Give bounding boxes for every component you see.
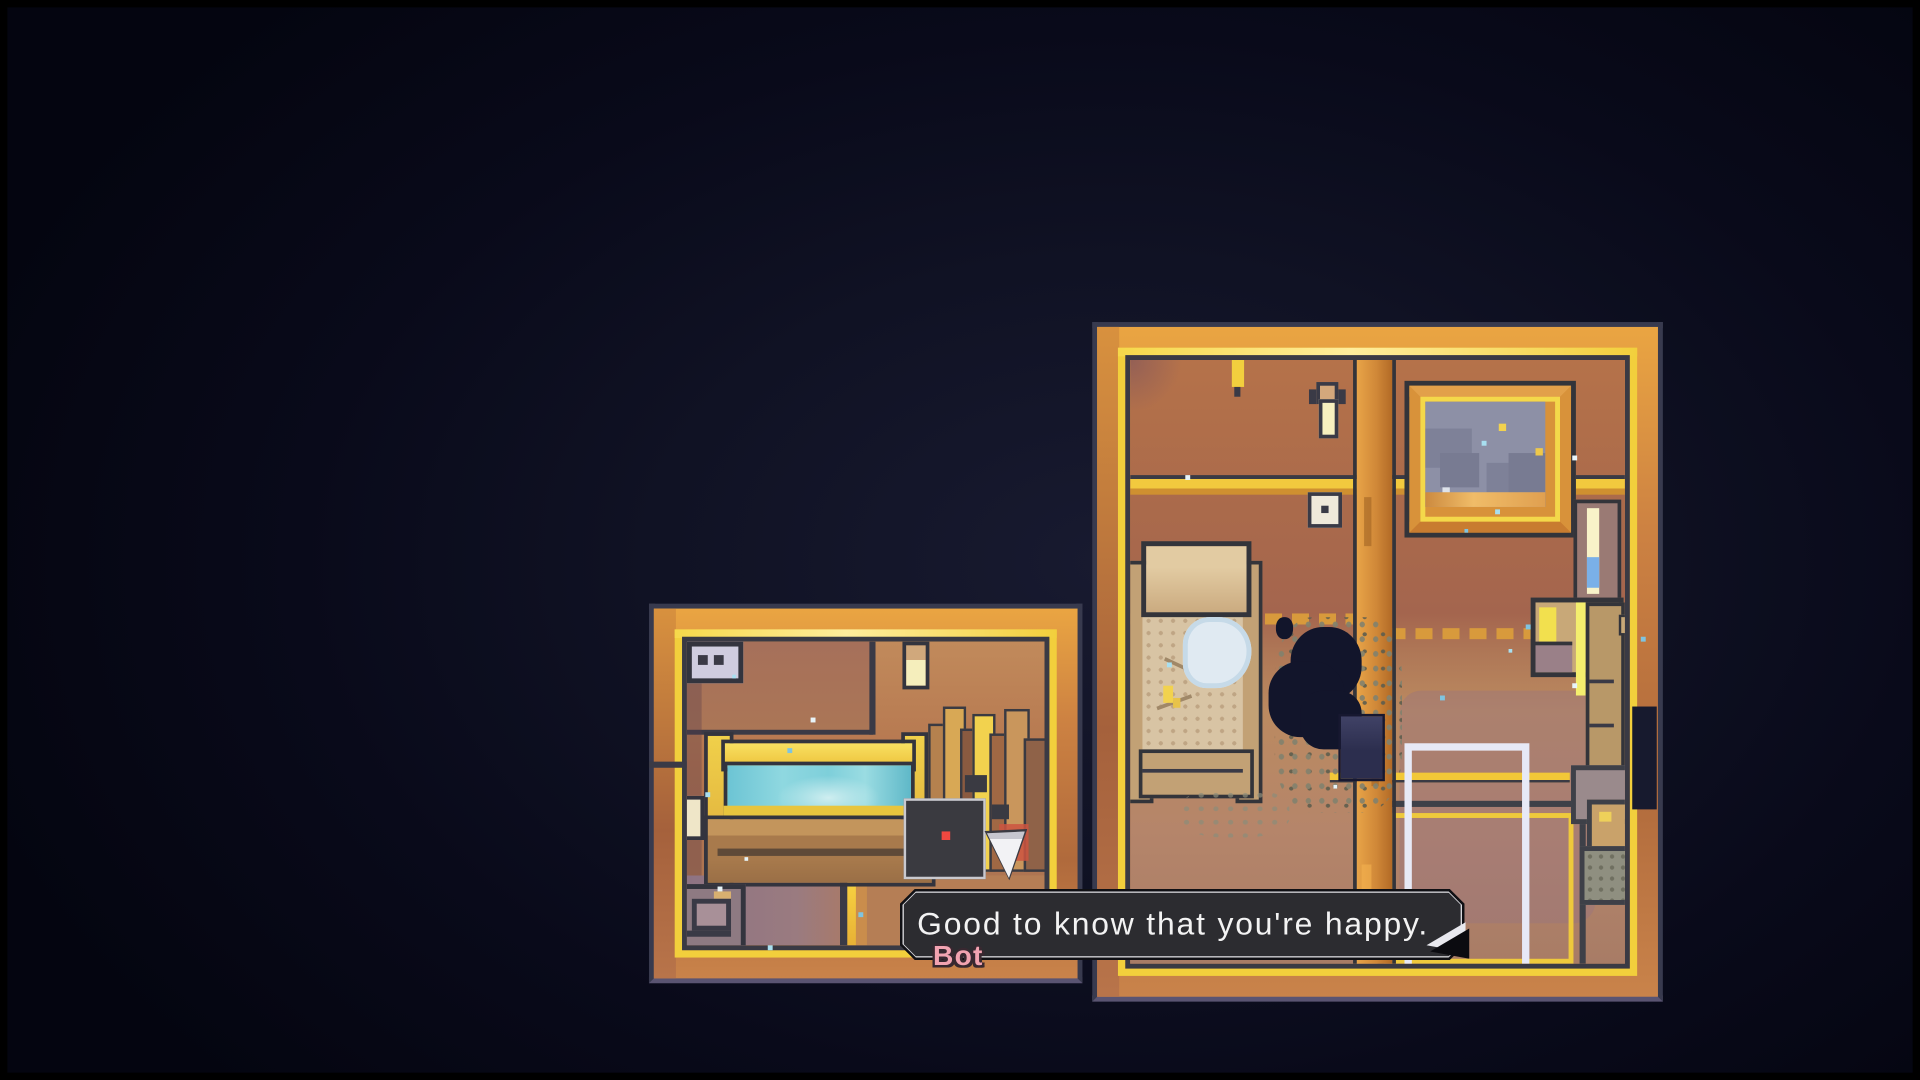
window-sill [1425, 492, 1545, 507]
speaker-label: Bot [933, 939, 984, 972]
right-room-interior [1130, 360, 1625, 964]
dust-sparkle [858, 912, 863, 917]
book-gap [965, 775, 987, 792]
wall-tick-tail [1234, 387, 1240, 397]
crate-glint [1599, 812, 1611, 822]
right-wall-doorway [1632, 707, 1656, 810]
machine-basin [692, 899, 731, 931]
blanket-glint [1163, 686, 1173, 703]
dust-sparkle [1572, 456, 1577, 461]
wall-outlet [1308, 492, 1342, 528]
dust-sparkle [1167, 662, 1172, 667]
book-gap [992, 804, 1009, 819]
outlet-slot [714, 655, 724, 665]
wall-switch [687, 796, 704, 840]
crate [1580, 846, 1625, 905]
dust-sparkle [744, 857, 748, 861]
dust-sparkle [705, 792, 710, 797]
bot-eye [942, 831, 951, 840]
dialogue-box[interactable]: Good to know that you're happy. [900, 889, 1464, 960]
dust-sparkle [1509, 649, 1513, 653]
dust-sparkle [1333, 785, 1337, 789]
dust-sparkle [768, 945, 773, 950]
desk-streak [718, 849, 916, 856]
creature-tendril [1276, 617, 1293, 639]
wall-tick [1232, 360, 1244, 387]
dust-sparkle [811, 718, 816, 723]
night-star [1499, 424, 1506, 431]
tall-lamp [1573, 500, 1621, 610]
dust-sparkle [732, 675, 736, 679]
dust-sparkle [1185, 475, 1190, 480]
column-seam [1589, 680, 1613, 684]
window-glass [1425, 402, 1545, 507]
wall-candle [1309, 382, 1346, 437]
night-star [1536, 448, 1543, 455]
pillar-streak [1364, 497, 1371, 546]
left-room-wall-left [654, 609, 676, 979]
triangle-body [987, 831, 1025, 878]
night-cloud [1440, 453, 1479, 487]
dust-sparkle [1464, 529, 1468, 533]
dialogue-advance-arrow-icon[interactable] [1430, 926, 1469, 959]
sink-machine [687, 884, 746, 945]
dialogue-text: Good to know that you're happy. [917, 889, 1452, 960]
floor-dirt [1179, 789, 1289, 838]
side-desk-drawer [1536, 642, 1573, 673]
dust-sparkle [787, 748, 792, 753]
wall-candle [902, 642, 929, 690]
dust-sparkle [718, 887, 723, 892]
wall-divider [869, 642, 875, 735]
triangle-character[interactable] [984, 829, 1027, 880]
candle-nub [1337, 389, 1346, 404]
dust-sparkle [1495, 509, 1500, 514]
desk [704, 816, 935, 887]
dust-sparkle [1641, 637, 1646, 642]
outlet-dot [1321, 506, 1328, 513]
dust-sparkle [1482, 441, 1487, 446]
aquarium-unit [704, 732, 928, 879]
wall-knob [1619, 615, 1625, 636]
wall-corner-shade [1130, 360, 1203, 433]
creature-satchel [1338, 714, 1385, 781]
dust-sparkle [1572, 683, 1577, 688]
column-seam [1589, 724, 1613, 728]
bed [1130, 541, 1259, 798]
window [1404, 381, 1575, 538]
game-viewport: Good to know that you're happy. Bot [0, 0, 1920, 1080]
dust-sparkle [1440, 696, 1445, 701]
light-column [1576, 602, 1586, 695]
left-wall-seam [649, 762, 687, 768]
dust-sparkle [1526, 624, 1531, 629]
footboard-line [1142, 769, 1242, 773]
outlet-slot [698, 655, 708, 665]
bed-headboard [1141, 541, 1251, 617]
machine-bar [687, 931, 731, 937]
candle-body [1319, 399, 1339, 438]
night-cloud [1509, 453, 1546, 492]
bot-character[interactable] [904, 798, 986, 879]
lamp-blue [1587, 557, 1599, 588]
blanket-glint [1173, 698, 1180, 708]
